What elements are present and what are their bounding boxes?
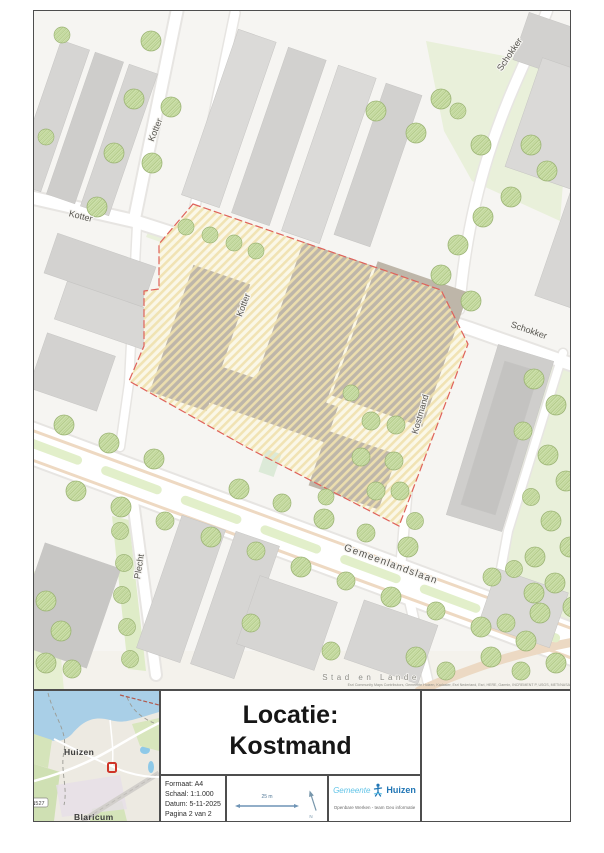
area-label-stad-en-lande: Stad en Lande — [322, 673, 420, 682]
scalebar-label: 25 m — [261, 794, 272, 800]
meta-formaat: Formaat: A4 — [165, 780, 225, 790]
metadata-block: Formaat: A4 Schaal: 1:1.000 Datum: 5-11-… — [160, 775, 226, 822]
logo-block: Gemeente Huizen Openbare Werken - team G… — [328, 775, 421, 822]
meta-pagina: Pagina 2 van 2 — [165, 810, 225, 820]
map-attribution: Esri Community Maps Contributors, Gemeen… — [348, 683, 571, 687]
meta-schaal: Schaal: 1:1.000 — [165, 790, 225, 800]
inset-label-huizen: Huizen — [64, 747, 94, 757]
scalebar-block: 25 m N — [226, 775, 328, 822]
north-label: N — [309, 814, 312, 819]
logo-subtitle: Openbare Werken - team Geo informatie — [329, 805, 420, 810]
title-line-2: Kostmand — [161, 731, 420, 762]
empty-panel — [421, 690, 571, 822]
title-line-1: Locatie: — [161, 700, 420, 731]
inset-road-shield: N527 — [34, 798, 48, 807]
inset-overview-map: Huizen Blaricum N527 — [33, 690, 160, 822]
svg-text:N527: N527 — [34, 801, 45, 807]
logo-name: Huizen — [386, 785, 416, 795]
meta-datum: Datum: 5-11-2025 — [165, 800, 225, 810]
page: { "sheet": { "map": { "street_labels": {… — [0, 0, 604, 853]
north-arrow-icon: N — [307, 790, 318, 819]
huizen-figure-icon — [372, 783, 384, 797]
main-map: Kotter Kotter Kotter Schokker Schokker K… — [33, 10, 571, 690]
main-map-canvas: Kotter Kotter Kotter Schokker Schokker K… — [34, 11, 571, 690]
inset-map-canvas: Huizen Blaricum N527 — [34, 691, 159, 821]
inset-label-blaricum: Blaricum — [74, 812, 114, 821]
logo-prefix: Gemeente — [333, 786, 370, 795]
scalebar-icon — [235, 804, 299, 808]
title-block: Locatie: Kostmand — [160, 690, 421, 775]
